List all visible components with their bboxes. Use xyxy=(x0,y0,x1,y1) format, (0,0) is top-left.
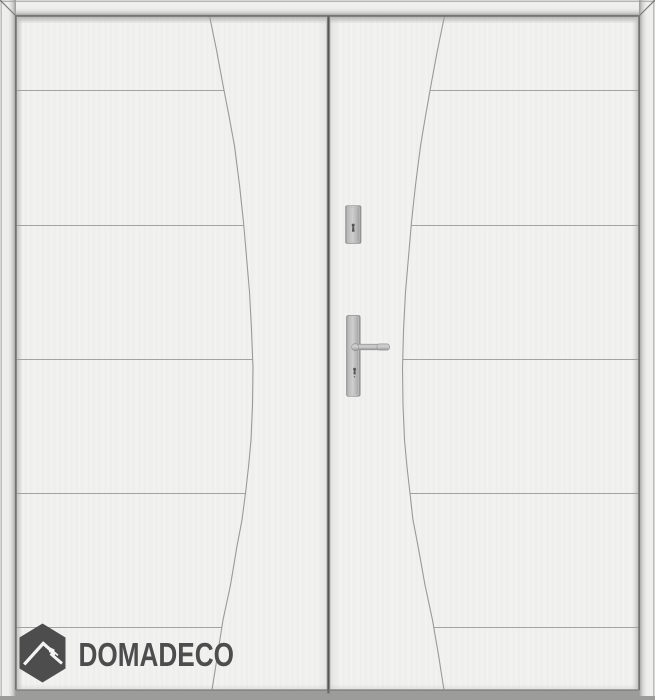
svg-text:DOMADECO: DOMADECO xyxy=(79,637,235,674)
